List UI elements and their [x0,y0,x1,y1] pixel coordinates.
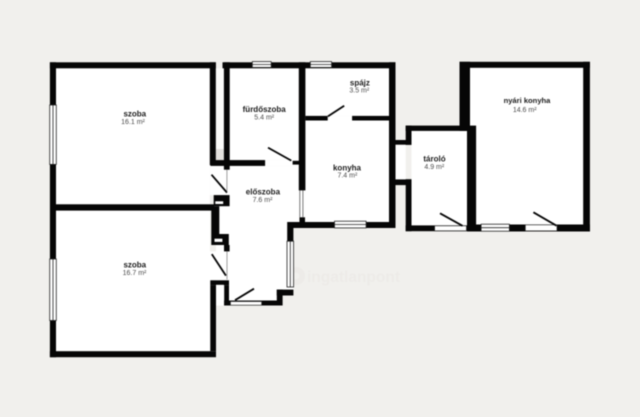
svg-text:7.6 m²: 7.6 m² [253,197,274,204]
svg-text:nyári konyha: nyári konyha [504,96,552,105]
svg-text:előszoba: előszoba [246,188,281,197]
svg-text:7.4 m²: 7.4 m² [337,173,358,180]
svg-text:16.7 m²: 16.7 m² [123,270,147,277]
svg-text:tároló: tároló [423,154,445,163]
svg-text:16.1 m²: 16.1 m² [121,119,145,126]
svg-text:4.9 m²: 4.9 m² [424,164,445,171]
svg-text:konyha: konyha [333,163,362,172]
svg-text:szoba: szoba [123,260,146,269]
svg-text:spájz: spájz [350,78,370,87]
svg-text:ingatlanpont: ingatlanpont [307,269,400,286]
svg-text:szoba: szoba [123,110,146,119]
svg-text:fürdőszoba: fürdőszoba [243,105,287,114]
svg-text:14.6 m²: 14.6 m² [513,107,537,114]
svg-text:3.5 m²: 3.5 m² [349,88,370,95]
svg-text:5.4 m²: 5.4 m² [254,114,275,121]
